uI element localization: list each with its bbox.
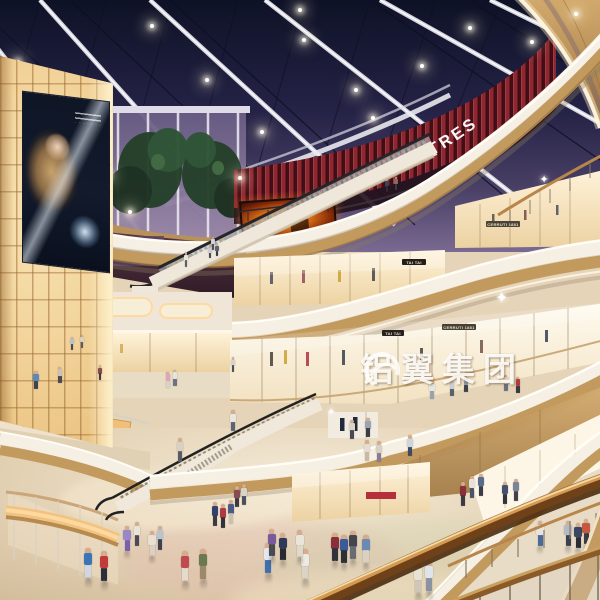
foreground-layer [0, 0, 600, 600]
mall-atrium-scene: THEATRES [0, 0, 600, 600]
watermark-logo [360, 348, 404, 392]
watermark: 铝翼集团 [360, 348, 524, 392]
